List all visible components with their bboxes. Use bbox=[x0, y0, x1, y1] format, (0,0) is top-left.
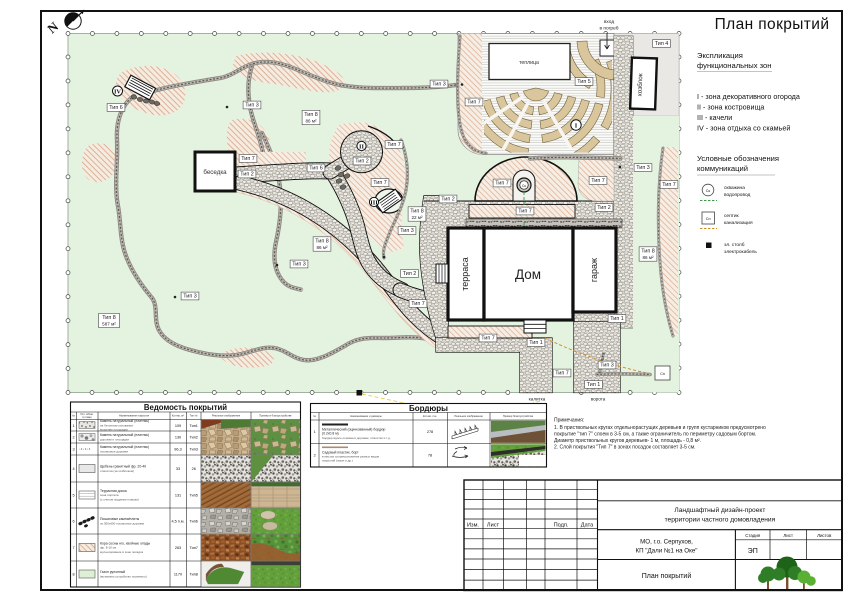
svg-text:Пример в благоустройстве: Пример в благоустройстве bbox=[259, 414, 292, 418]
svg-text:калитка: калитка bbox=[529, 397, 546, 402]
svg-text:Изм.: Изм. bbox=[467, 523, 479, 529]
svg-text:пошаговые дорожки: пошаговые дорожки bbox=[100, 449, 128, 453]
svg-text:МО, г.о. Серпухов,: МО, г.о. Серпухов, bbox=[640, 539, 693, 546]
svg-text:109: 109 bbox=[175, 424, 181, 428]
svg-text:4: 4 bbox=[72, 467, 74, 471]
svg-text:вход: вход bbox=[604, 20, 614, 25]
svg-text:септик: септик bbox=[724, 214, 740, 219]
svg-text:Дата: Дата bbox=[581, 523, 594, 529]
svg-text:ок.300х600 пошаговые дорожки: ок.300х600 пошаговые дорожки bbox=[100, 521, 145, 525]
svg-text:Тип5: Тип5 bbox=[189, 494, 197, 498]
svg-text:Тип 8: Тип 8 bbox=[410, 208, 423, 214]
svg-text:2: 2 bbox=[314, 454, 316, 458]
svg-text:Тип 7: Тип 7 bbox=[662, 182, 675, 188]
svg-text:Листов: Листов bbox=[817, 533, 832, 538]
svg-text:587 м²: 587 м² bbox=[102, 321, 116, 326]
svg-text:Тип 3: Тип 3 bbox=[400, 228, 413, 234]
svg-text:Тип1: Тип1 bbox=[189, 424, 197, 428]
svg-text:Тип 1: Тип 1 bbox=[529, 340, 542, 346]
svg-text:IV: IV bbox=[114, 88, 121, 95]
svg-text:Тип 3: Тип 3 bbox=[636, 165, 649, 171]
svg-text:Стадия: Стадия bbox=[745, 533, 761, 538]
svg-text:33: 33 bbox=[176, 467, 180, 471]
svg-text:Реальное изображение: Реальное изображение bbox=[212, 414, 241, 418]
svg-text:(с учетом подрезки плашки): (с учетом подрезки плашки) bbox=[100, 497, 139, 501]
svg-text:канализация: канализация bbox=[724, 221, 753, 226]
svg-text:Тип 2: Тип 2 bbox=[403, 271, 416, 277]
svg-text:Кол-во, п.м.: Кол-во, п.м. bbox=[423, 414, 437, 418]
svg-text:(возможно устройство посевного: (возможно устройство посевного) bbox=[100, 574, 147, 578]
svg-text:Дом: Дом bbox=[515, 267, 541, 282]
svg-text:функциональных зон: функциональных зон bbox=[697, 61, 771, 70]
svg-text:Тип 2: Тип 2 bbox=[355, 159, 368, 165]
svg-text:Бордюры: Бордюры bbox=[409, 404, 448, 413]
svg-text:Ск: Ск bbox=[706, 189, 711, 193]
svg-text:мульчирование в зоне посадок: мульчирование в зоне посадок bbox=[100, 550, 144, 554]
svg-text:II - зона костровища: II - зона костровища bbox=[697, 103, 764, 112]
svg-text:Тип 5: Тип 5 bbox=[577, 79, 590, 85]
svg-text:III - качели: III - качели bbox=[697, 113, 732, 122]
svg-text:2. Слой покрытия "Тип 7" в зон: 2. Слой покрытия "Тип 7" в зонах посадок… bbox=[554, 444, 696, 451]
svg-text:Тип 8: Тип 8 bbox=[641, 248, 654, 254]
svg-text:7: 7 bbox=[72, 546, 74, 550]
svg-text:Тип8: Тип8 bbox=[189, 573, 197, 577]
svg-text:Реальное изображение: Реальное изображение bbox=[455, 414, 484, 418]
svg-text:78: 78 bbox=[428, 454, 432, 458]
svg-text:Тип №: Тип № bbox=[190, 414, 198, 418]
svg-text:Тип 7: Тип 7 bbox=[591, 178, 604, 184]
svg-text:5: 5 bbox=[72, 494, 74, 498]
svg-text:Тип 7: Тип 7 bbox=[518, 209, 531, 215]
svg-text:263: 263 bbox=[175, 546, 181, 550]
svg-text:отмостка (за хозблоком): отмостка (за хозблоком) bbox=[100, 469, 134, 473]
svg-text:Тип7: Тип7 bbox=[189, 546, 197, 550]
svg-text:бордюр вдоль основных дорожек,: бордюр вдоль основных дорожек, отмостки … bbox=[322, 436, 391, 440]
svg-text:ЭП: ЭП bbox=[748, 548, 758, 555]
svg-text:1: 1 bbox=[72, 424, 74, 428]
svg-text:в плане: в плане bbox=[82, 416, 92, 419]
svg-text:3: 3 bbox=[72, 448, 74, 452]
svg-text:Тип 8: Тип 8 bbox=[315, 238, 328, 244]
svg-text:Тип 2: Тип 2 bbox=[441, 197, 454, 203]
svg-text:Тип 7: Тип 7 bbox=[467, 100, 480, 106]
svg-text:Тип 7: Тип 7 bbox=[495, 181, 508, 187]
svg-text:План покрытий: План покрытий bbox=[642, 572, 692, 580]
svg-text:86 м²: 86 м² bbox=[642, 255, 654, 260]
svg-text:КП "Дали №1 на Оке": КП "Дали №1 на Оке" bbox=[636, 548, 698, 555]
svg-text:теплица: теплица bbox=[519, 60, 539, 66]
svg-text:86 м²: 86 м² bbox=[305, 118, 317, 123]
svg-text:Тип 2: Тип 2 bbox=[240, 172, 253, 178]
svg-text:электрокабель: электрокабель bbox=[724, 249, 757, 255]
svg-text:6: 6 bbox=[72, 520, 74, 524]
svg-text:Тип 1: Тип 1 bbox=[610, 316, 623, 322]
svg-text:86 м²: 86 м² bbox=[316, 245, 328, 250]
svg-text:Тип 7: Тип 7 bbox=[481, 336, 494, 342]
svg-text:8: 8 bbox=[72, 573, 74, 577]
svg-text:96,3: 96,3 bbox=[174, 448, 181, 452]
svg-text:ворота: ворота bbox=[591, 397, 606, 402]
svg-text:территории частного домовладен: территории частного домовладения bbox=[665, 517, 776, 524]
svg-text:1170: 1170 bbox=[174, 573, 182, 577]
svg-text:Тип 3: Тип 3 bbox=[600, 363, 613, 369]
svg-text:1. В приствольных кругах отдел: 1. В приствольных кругах отдельнорастущи… bbox=[554, 425, 766, 431]
svg-text:№: № bbox=[313, 415, 316, 418]
svg-text:131: 131 bbox=[175, 494, 181, 498]
svg-text:III: III bbox=[370, 199, 378, 206]
svg-text:I - зона декоративного огорода: I - зона декоративного огорода bbox=[697, 92, 800, 101]
svg-text:Примечания:: Примечания: bbox=[554, 418, 584, 424]
svg-text:водопровод: водопровод bbox=[724, 193, 751, 198]
svg-text:хозблок: хозблок bbox=[636, 73, 645, 96]
svg-text:IV - зона отдыха со скамьей: IV - зона отдыха со скамьей bbox=[697, 124, 790, 133]
svg-text:Сп: Сп bbox=[660, 372, 665, 376]
svg-text:Тип 2: Тип 2 bbox=[597, 205, 610, 211]
svg-text:Тип 7: Тип 7 bbox=[373, 180, 386, 186]
svg-text:Тип 3: Тип 3 bbox=[432, 82, 445, 88]
svg-text:в погреб: в погреб bbox=[600, 26, 619, 32]
svg-text:беседка: беседка bbox=[203, 169, 227, 176]
svg-text:эл. столб: эл. столб bbox=[724, 242, 745, 248]
svg-text:Ведомость покрытий: Ведомость покрытий bbox=[144, 403, 227, 412]
svg-text:покрытие "тип 7" слоем в 3-5 с: покрытие "тип 7" слоем в 3-5 см, а также… bbox=[554, 432, 756, 438]
svg-text:Тип3: Тип3 bbox=[189, 448, 197, 452]
svg-text:4,5 п.м.: 4,5 п.м. bbox=[171, 520, 184, 524]
svg-text:коммуникаций: коммуникаций bbox=[697, 164, 748, 173]
svg-text:№: № bbox=[72, 415, 75, 418]
svg-text:скважина: скважина bbox=[724, 186, 745, 191]
svg-text:покрытий (газон и др.): покрытий (газон и др.) bbox=[322, 458, 353, 462]
svg-text:Тип 1: Тип 1 bbox=[587, 382, 600, 388]
svg-text:278: 278 bbox=[427, 430, 433, 434]
svg-text:Тип 8: Тип 8 bbox=[304, 112, 317, 118]
svg-text:План покрытий: План покрытий bbox=[715, 16, 830, 33]
svg-text:Пример благоустройства: Пример благоустройства bbox=[503, 414, 534, 418]
svg-text:2: 2 bbox=[72, 436, 74, 440]
svg-text:Экспликация: Экспликация bbox=[697, 51, 743, 60]
svg-text:Тип6: Тип6 bbox=[189, 520, 197, 524]
svg-text:Лист: Лист bbox=[487, 523, 500, 529]
svg-text:Лист: Лист bbox=[783, 533, 793, 538]
svg-text:II: II bbox=[359, 143, 364, 150]
svg-text:Наименование и размеры: Наименование и размеры bbox=[350, 414, 382, 418]
svg-text:Подп.: Подп. bbox=[554, 523, 569, 529]
svg-text:◦∘◦∘◦∘: ◦∘◦∘◦∘ bbox=[79, 447, 91, 452]
svg-text:1: 1 bbox=[314, 430, 316, 434]
svg-text:Тип2: Тип2 bbox=[189, 436, 197, 440]
svg-text:дорожки и площадки: дорожки и площадки bbox=[100, 437, 129, 441]
svg-text:гараж: гараж bbox=[589, 258, 599, 282]
svg-text:26: 26 bbox=[192, 467, 196, 471]
svg-text:Тип 4: Тип 4 bbox=[655, 41, 668, 47]
svg-text:Наименование покрытия: Наименование покрытия bbox=[119, 414, 150, 418]
svg-text:Тип 7: Тип 7 bbox=[555, 371, 568, 377]
svg-text:Тип 8: Тип 8 bbox=[102, 315, 115, 321]
svg-text:130: 130 bbox=[175, 436, 181, 440]
svg-text:Тип 7: Тип 7 bbox=[411, 301, 424, 307]
svg-text:Тип 3: Тип 3 bbox=[245, 103, 258, 109]
svg-text:Условные обозначения: Условные обозначения bbox=[697, 154, 779, 163]
svg-text:Тип 6: Тип 6 bbox=[309, 166, 322, 172]
svg-text:Тип 7: Тип 7 bbox=[387, 142, 400, 148]
svg-text:Тип 7: Тип 7 bbox=[241, 156, 254, 162]
svg-text:22 м²: 22 м² bbox=[411, 215, 423, 220]
svg-text:Сп: Сп bbox=[706, 217, 711, 221]
svg-text:Тип 3: Тип 3 bbox=[292, 262, 305, 268]
svg-text:Диаметр приствольных кругов д: Диаметр приствольных кругов деревьев- 1 … bbox=[554, 438, 701, 444]
svg-text:мощение площадки: мощение площадки bbox=[100, 428, 128, 432]
svg-text:терраса: терраса bbox=[460, 257, 470, 291]
svg-text:Ландшафтный дизайн-проект: Ландшафтный дизайн-проект bbox=[674, 506, 765, 514]
svg-text:Тип 3: Тип 3 bbox=[183, 294, 196, 300]
svg-text:Тип 6: Тип 6 bbox=[109, 105, 122, 111]
svg-text:Ск: Ск bbox=[522, 184, 526, 188]
svg-text:Кол-во, м²: Кол-во, м² bbox=[172, 414, 184, 418]
